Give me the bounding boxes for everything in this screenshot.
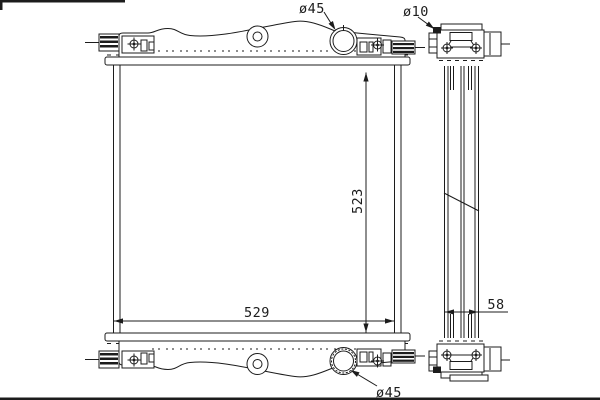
dim-label-height: 523 xyxy=(350,188,366,214)
side-view xyxy=(429,24,510,381)
mounting-hole-square xyxy=(433,367,441,374)
boss-circle-bottom xyxy=(247,354,268,375)
dim-label-width: 529 xyxy=(244,305,270,321)
dim-core-depth: 58 xyxy=(445,297,509,315)
label-hole-diameter: ø10 xyxy=(403,4,436,31)
label-filler-text: ø45 xyxy=(299,1,325,17)
side-bottom-tank xyxy=(429,341,510,381)
front-view xyxy=(85,21,425,377)
dim-core-height: 523 xyxy=(350,73,369,333)
side-top-tank xyxy=(429,24,510,61)
front-bottom-tank xyxy=(85,341,425,377)
mounting-hole-square xyxy=(433,27,441,34)
drawing-svg: 529 523 58 ø45 ø10 xyxy=(0,0,600,400)
label-outlet-diameter: ø45 xyxy=(349,368,402,400)
dim-core-width: 529 xyxy=(114,305,394,324)
side-core xyxy=(444,66,479,338)
radiator-technical-drawing: 529 523 58 ø45 ø10 xyxy=(0,0,600,400)
boss-circle-top xyxy=(247,26,268,47)
front-top-tank xyxy=(85,21,425,57)
filler-neck-circle xyxy=(330,25,357,55)
dim-label-depth: 58 xyxy=(487,297,504,313)
label-hole-text: ø10 xyxy=(403,4,429,20)
outlet-circle xyxy=(330,348,357,375)
